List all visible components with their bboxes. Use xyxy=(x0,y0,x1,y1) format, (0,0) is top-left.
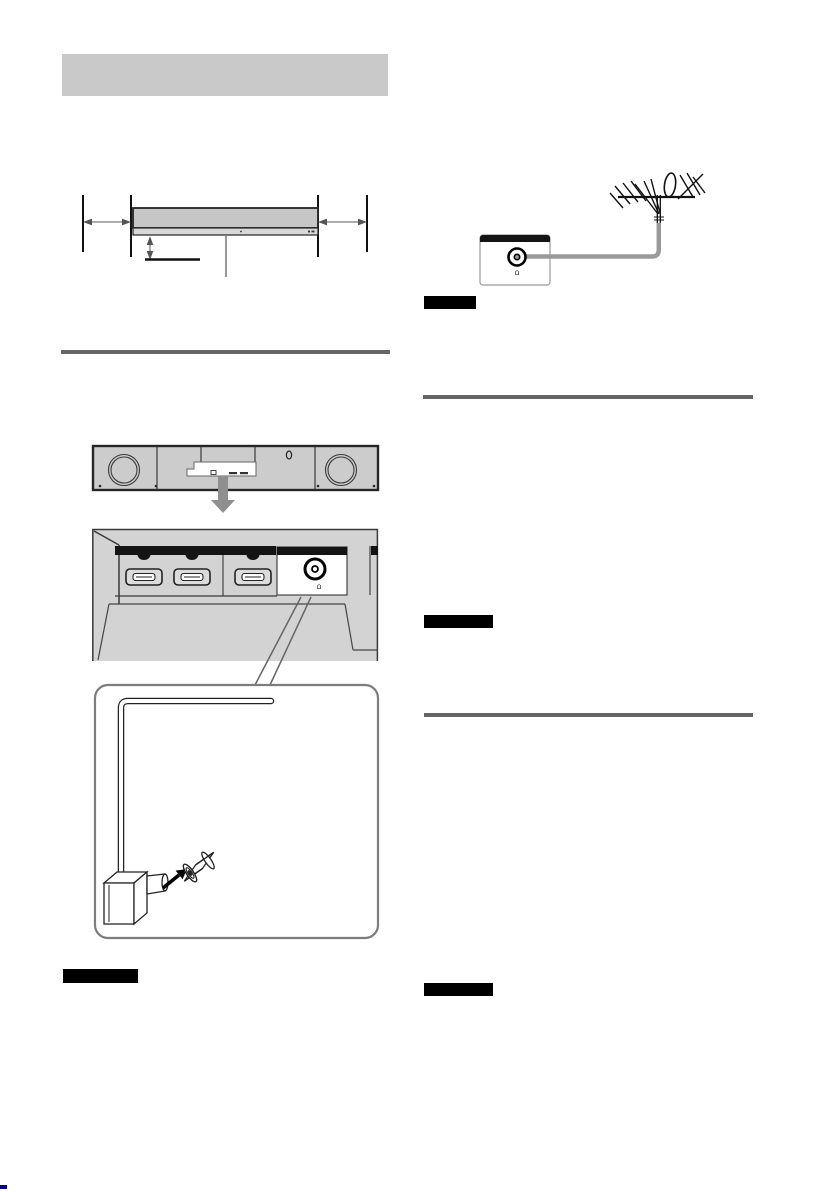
hdmi-port-icon xyxy=(174,569,210,585)
soundbar-front-body xyxy=(133,208,318,228)
note-badge xyxy=(424,615,493,628)
height-clearance-arrow-icon xyxy=(147,238,152,259)
antenna-section: Ω xyxy=(277,547,347,595)
tv-aerial-icon xyxy=(610,172,705,223)
section-title-block xyxy=(62,54,388,96)
right-column-rule-1 xyxy=(423,395,753,399)
right-column-rule-2 xyxy=(424,713,753,717)
soundbar-rear-view xyxy=(90,443,390,518)
note-badge xyxy=(424,983,493,996)
hdmi-port-icon xyxy=(235,569,271,585)
soundbar-front-base xyxy=(133,228,318,235)
hdmi-port-icon xyxy=(126,569,162,585)
antenna-jack-symbol: Ω xyxy=(515,270,520,277)
antenna-jack-symbol: Ω xyxy=(317,584,322,591)
manual-page: Ω xyxy=(0,0,839,1191)
wall-mount-keyhole-icon xyxy=(286,451,291,459)
hdmi-ports xyxy=(126,569,271,585)
connector-panel-detail: Ω xyxy=(90,525,390,985)
antenna-connection-diagram: Ω xyxy=(460,168,722,295)
note-badge xyxy=(63,969,138,983)
left-column-rule xyxy=(61,350,390,354)
clearance-diagram xyxy=(55,190,385,285)
right-clearance-arrow-icon xyxy=(320,219,366,224)
note-badge xyxy=(424,296,476,309)
left-clearance-arrow-icon xyxy=(85,219,130,224)
page-corner-mark xyxy=(0,1185,7,1189)
